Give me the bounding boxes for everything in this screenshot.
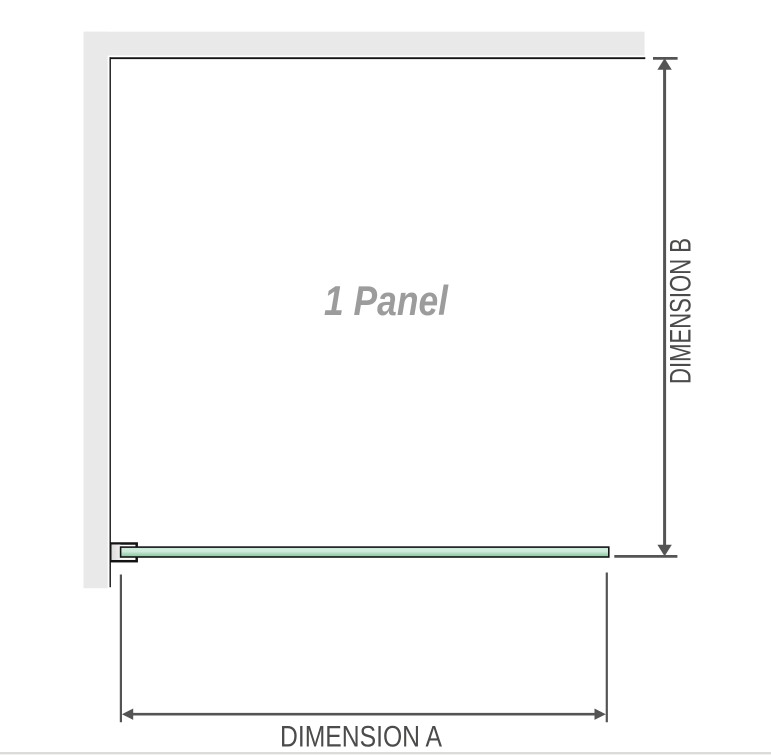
- svg-text:1 Panel: 1 Panel: [324, 277, 449, 324]
- svg-text:DIMENSION A: DIMENSION A: [280, 720, 442, 753]
- svg-text:DIMENSION B: DIMENSION B: [664, 238, 697, 384]
